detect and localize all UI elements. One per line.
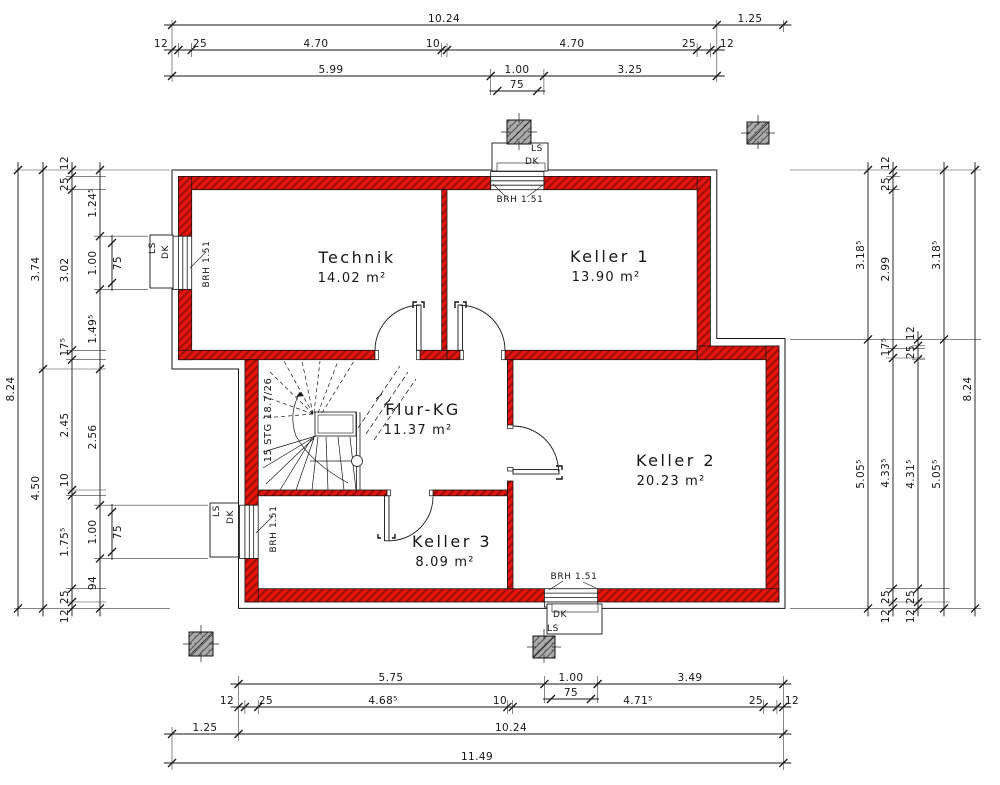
dim-label: 75	[564, 687, 578, 699]
dim-label: 1.00	[505, 64, 530, 76]
dim-label: 4.31⁵	[905, 459, 917, 489]
wall-right-lower	[766, 346, 779, 602]
dim-label: 1.25	[738, 13, 763, 25]
wall-bottom-right-segment	[598, 589, 779, 602]
dim-chain: 8.24	[962, 162, 979, 616]
dim-label: 25	[880, 590, 892, 604]
dim-label: 25	[880, 177, 892, 191]
room-area: 14.02 m²	[318, 271, 387, 286]
dim-label: 12	[905, 326, 917, 340]
lightwell-dk-left-top: DK	[161, 244, 171, 259]
dim-label: 12	[880, 156, 892, 170]
lightwell-ls-bottom: LS	[547, 624, 559, 634]
dim-label: 3.18⁵	[931, 240, 943, 270]
dim-chain: 1.24⁵1.001.49⁵2.561.0094	[87, 162, 104, 616]
wall-bottom-left-segment	[245, 589, 545, 602]
dim-label: 1.25	[193, 722, 218, 734]
window-left-technik	[173, 236, 192, 289]
room-name: Technik	[317, 248, 395, 267]
light-wells	[150, 143, 602, 634]
window-sill-note-bottom: BRH 1.51	[551, 572, 598, 582]
dim-label: 17⁵	[880, 338, 892, 357]
dim-label: 12	[880, 609, 892, 623]
room-name: Keller 1	[570, 247, 650, 266]
door-technik	[375, 302, 424, 360]
wall-right-upper	[697, 176, 710, 350]
dim-label: 17⁵	[59, 338, 71, 357]
dim-label: 8.24	[962, 377, 974, 402]
dim-chain: 75	[489, 79, 545, 95]
room-area: 13.90 m²	[572, 270, 641, 285]
dim-label: 75	[112, 256, 124, 270]
stair-label: 15 STG 18.7/26	[263, 378, 274, 463]
dim-label: 25	[905, 590, 917, 604]
dim-chain: 8.24	[5, 162, 22, 616]
window-sill-note-left: BRH 1.51	[202, 241, 212, 288]
dim-label: 12	[785, 695, 799, 707]
dim-label: 10	[59, 473, 71, 487]
room-name: Flur-KG	[385, 400, 461, 419]
dim-label: 2.45	[59, 413, 71, 438]
dim-label: 5.05⁵	[855, 459, 867, 489]
dim-label: 1.75⁵	[59, 527, 71, 557]
door-keller2	[507, 425, 562, 479]
dim-chain: 3.18⁵5.05⁵	[931, 162, 948, 616]
wall-left-upper-b	[178, 289, 191, 359]
dim-label: 2.56	[87, 425, 99, 450]
dim-label: 12	[154, 38, 168, 50]
dim-label: 4.70	[560, 38, 585, 50]
dim-chain: 75	[108, 504, 124, 560]
dim-label: 12	[59, 156, 71, 170]
lightwell-ls-left-bottom: LS	[212, 505, 222, 517]
dim-label: 10	[426, 38, 440, 50]
dim-chain: 12253.0217⁵2.45101.75⁵2512	[59, 156, 76, 623]
dim-label: 3.74	[30, 257, 42, 282]
dim-label: 1.24⁵	[87, 188, 99, 218]
dim-label: 4.70	[304, 38, 329, 50]
dim-chain: 10.241.25	[164, 13, 791, 29]
dim-label: 5.75	[379, 672, 404, 684]
wall-divider-technik-keller1	[442, 190, 447, 351]
wall-technik-south	[178, 350, 375, 359]
dim-label: 10.24	[495, 722, 527, 734]
wall-left-upper-a	[178, 176, 191, 236]
dim-label: 25	[193, 38, 207, 50]
dim-chain: 5.991.003.25	[164, 64, 725, 80]
wall-divider-flur-keller2-lower	[507, 481, 513, 589]
room-area: 20.23 m²	[637, 474, 706, 489]
dim-label: 12	[720, 38, 734, 50]
window-sill-note-keller3: BRH 1.51	[269, 506, 279, 553]
dim-label: 4.33⁵	[880, 458, 892, 488]
extension-lines	[14, 20, 981, 770]
window-top-keller1	[491, 172, 544, 190]
door-keller1	[455, 302, 505, 360]
dim-label: 10.24	[428, 13, 460, 25]
dimension-chains: 10.241.2512254.70104.7025125.991.003.257…	[5, 13, 979, 767]
dim-label: 25	[59, 177, 71, 191]
dim-label: 1.49⁵	[87, 314, 99, 344]
wall-top-left-segment	[178, 176, 490, 189]
dim-chain: 75	[543, 687, 599, 703]
text-labels: Technik14.02 m²Keller 113.90 m²Flur-KG11…	[148, 144, 716, 634]
window-left-keller3	[240, 505, 259, 558]
dim-label: 3.25	[618, 64, 643, 76]
dim-chain: 12254.70104.702512	[154, 38, 734, 54]
lightwell-dk-bottom: DK	[553, 610, 568, 620]
dim-label: 25	[749, 695, 763, 707]
floorplan-page: 10.241.2512254.70104.7025125.991.003.257…	[0, 0, 1000, 781]
wall-left-lower-a	[245, 360, 258, 506]
window-sill-note-top: BRH 1.51	[497, 195, 544, 205]
wall-left-lower-b	[245, 558, 258, 602]
wall-keller3-north-a	[258, 490, 387, 496]
dim-label: 75	[112, 525, 124, 539]
dim-label: 8.24	[5, 377, 17, 402]
doors	[375, 302, 562, 541]
dim-label: 75	[510, 79, 524, 91]
dim-label: 2.99	[880, 257, 892, 282]
wall-keller3-north-b	[433, 490, 507, 496]
dim-label: 12	[59, 609, 71, 623]
wall-keller1-south-stub	[447, 350, 460, 359]
dim-chain: 3.18⁵5.05⁵	[855, 162, 872, 616]
lightwell-dk-top: DK	[525, 157, 540, 167]
wall-keller1-south	[505, 350, 710, 359]
dim-chain: 11.49	[164, 751, 791, 767]
dim-label: 5.99	[319, 64, 344, 76]
dim-label: 3.02	[59, 258, 71, 283]
dim-label: 12	[220, 695, 234, 707]
dim-chain: 5.751.003.49	[231, 672, 792, 688]
dim-label: 12	[905, 609, 917, 623]
room-name: Keller 3	[412, 532, 492, 551]
dim-chain: 1.2510.24	[164, 722, 791, 738]
dim-label: 25	[682, 38, 696, 50]
wall-top-right-segment	[544, 176, 711, 189]
lightwell-ls-top: LS	[531, 144, 543, 154]
dim-label: 1.00	[87, 251, 99, 276]
dim-label: 10	[493, 695, 507, 707]
room-name: Keller 2	[636, 451, 716, 470]
dim-label: 25	[905, 345, 917, 359]
lightwell-dk-left-bottom: DK	[226, 509, 236, 524]
floorplan-drawing: 10.241.2512254.70104.7025125.991.003.257…	[0, 0, 1000, 781]
dim-chain: 3.744.50	[30, 162, 47, 616]
dim-label: 3.18⁵	[855, 240, 867, 270]
dim-label: 25	[59, 590, 71, 604]
dim-label: 11.49	[461, 751, 493, 763]
dim-label: 4.71⁵	[623, 695, 653, 707]
dim-label: 1.00	[87, 520, 99, 545]
room-area: 8.09 m²	[415, 555, 474, 570]
wall-divider-flur-keller2-upper	[507, 360, 513, 425]
dim-chain: 75	[108, 235, 124, 291]
lightwell-ls-left-top: LS	[148, 242, 158, 254]
dim-label: 3.49	[678, 672, 703, 684]
dim-label: 1.00	[559, 672, 584, 684]
chimney-bottom-left	[183, 625, 219, 662]
dim-label: 4.68⁵	[368, 695, 398, 707]
dim-chain: 12254.68⁵104.71⁵2512	[220, 695, 799, 711]
wall-technik-south-stub	[420, 350, 447, 359]
room-area: 11.37 m²	[384, 423, 453, 438]
dim-chain: 12252.9917⁵4.33⁵2512	[880, 156, 897, 623]
dim-label: 4.50	[30, 476, 42, 501]
dim-chain: 12254.31⁵2512	[905, 326, 922, 623]
chimney-top-right	[741, 115, 775, 149]
dim-label: 25	[259, 695, 273, 707]
dim-label: 94	[87, 576, 99, 590]
dim-label: 5.05⁵	[931, 459, 943, 489]
